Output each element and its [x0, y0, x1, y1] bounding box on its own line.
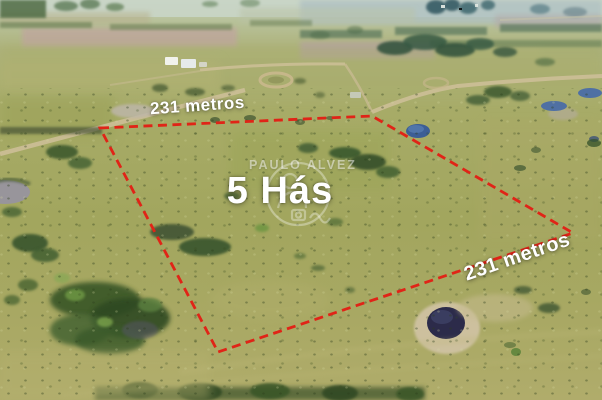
boundary-polygon — [100, 116, 573, 352]
area-label: 5 Hás — [180, 170, 380, 213]
listing-photo: PAULO ALVEZ 231 metros 231 metros 5 Hás — [0, 0, 602, 400]
